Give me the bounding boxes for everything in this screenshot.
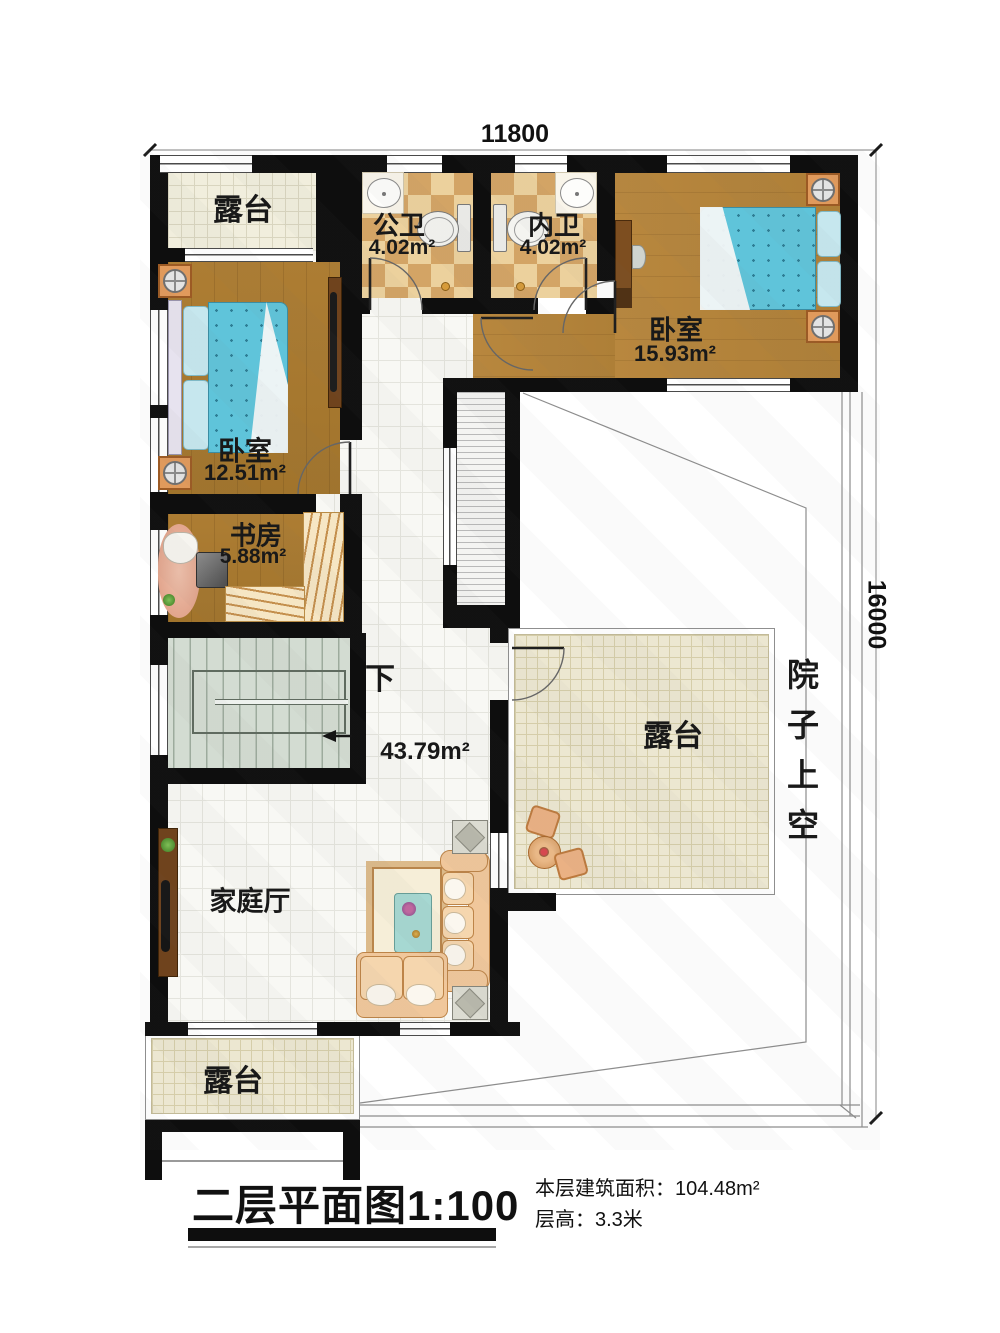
pergola-bar — [145, 1120, 360, 1132]
side-table — [452, 820, 488, 854]
room-label-terrace-top: 露台 — [213, 185, 273, 229]
door-knob — [516, 282, 525, 291]
table-flowers-icon — [402, 902, 416, 916]
window — [150, 310, 168, 405]
stairs-mid-rail — [215, 699, 348, 705]
pillow — [183, 306, 209, 376]
window — [667, 155, 790, 173]
bedroom-desk — [615, 220, 632, 290]
wall-family-bottom-3 — [450, 1022, 520, 1036]
wall-outer-right — [840, 155, 858, 392]
shaft-col-left-a — [443, 392, 457, 448]
window — [150, 665, 168, 755]
corridor-floor — [473, 314, 615, 378]
window-shaft — [443, 448, 457, 565]
plan-title: 二层平面图1:100 — [192, 1172, 519, 1233]
bed-headboard — [168, 300, 182, 455]
wall-family-bottom-2 — [317, 1022, 400, 1036]
window — [667, 378, 790, 392]
floor-height-row: 层高：3.3米 — [535, 1205, 760, 1236]
sink-basin — [367, 178, 401, 208]
pillow — [817, 261, 841, 307]
lamp-icon — [163, 269, 187, 293]
wall-family-bottom-1 — [145, 1022, 188, 1036]
lamp-icon — [811, 315, 835, 339]
floor-area-row: 本层建筑面积：104.48m² — [535, 1174, 760, 1205]
wall-pier — [316, 155, 362, 262]
side-table — [452, 986, 488, 1020]
wall-bath-right — [597, 155, 615, 281]
window — [490, 833, 508, 888]
wall-bath-bottom-4 — [586, 298, 615, 314]
room-area-bedroom-right: 15.93m² — [634, 341, 716, 367]
plant-icon — [163, 594, 175, 606]
patio-flower-icon — [539, 847, 549, 857]
room-area-study: 5.88m² — [220, 545, 287, 569]
wall-hall-courtyard-a — [490, 628, 508, 643]
room-label-family: 家庭厅 — [210, 880, 291, 919]
nightstand — [806, 310, 840, 343]
room-label-terrace-bottom: 露台 — [203, 1056, 263, 1100]
throw-pillow — [444, 878, 466, 900]
wall-stairs-bottom — [150, 768, 366, 784]
shaft-hatch — [457, 392, 505, 605]
floor-info: 本层建筑面积：104.48m² 层高：3.3米 — [535, 1174, 760, 1236]
wall-hall-courtyard-b — [490, 700, 508, 833]
floor-height-value: 3.3米 — [595, 1209, 643, 1231]
nightstand — [158, 456, 192, 490]
wardrobe-horizontal — [225, 586, 305, 622]
cabinet — [615, 288, 632, 308]
wall-bath-bottom-1 — [362, 298, 370, 314]
wall-stairs-right — [350, 633, 366, 772]
dimension-height: 16000 — [862, 565, 891, 665]
wall-bath-bottom-2 — [422, 298, 475, 314]
shaft-col-right — [505, 392, 520, 605]
tv-icon — [161, 880, 170, 952]
room-area-bath-public: 4.02m² — [369, 236, 436, 260]
throw-pillow — [406, 984, 436, 1006]
desk-chair — [632, 245, 646, 269]
floor-area-label: 本层建筑面积： — [535, 1178, 675, 1200]
window — [387, 155, 442, 173]
coffee-table — [394, 893, 432, 953]
floor-height-label: 层高： — [535, 1209, 595, 1231]
door-knob — [441, 282, 450, 291]
pillow — [183, 380, 209, 450]
desk-chair — [163, 532, 198, 564]
wall-bedroomL-right-a — [340, 262, 362, 440]
room-label-courtyard: 院子上空 — [778, 658, 824, 858]
wall-stub-terrace — [508, 893, 556, 911]
wall-bath-middle — [473, 155, 491, 314]
plant-icon — [161, 838, 175, 852]
stairs-down-label: 下 — [365, 654, 395, 698]
table-flowers-icon — [412, 930, 420, 938]
nightstand — [158, 264, 192, 298]
title-underline-bar — [188, 1228, 496, 1241]
nightstand — [806, 173, 840, 206]
room-area-bath-inner: 4.02m² — [520, 236, 587, 260]
pergola-rail — [162, 1160, 343, 1162]
window — [515, 155, 567, 173]
tv-icon — [330, 292, 337, 392]
wall-study-bottom — [150, 622, 362, 638]
sliding-door-terrace-top — [185, 248, 313, 262]
wall-bed-study-divider — [158, 494, 316, 514]
title-underline-thin — [188, 1246, 496, 1248]
room-area-hall: 43.79m² — [380, 738, 469, 766]
window — [400, 1022, 450, 1036]
window — [160, 155, 252, 173]
lamp-icon — [163, 461, 187, 485]
floor-plan: 露台 公卫 4.02m² 内卫 4.02m² 卧室 15.93m² 卧室 12.… — [0, 0, 1000, 1333]
wall-terrace-slider-end — [168, 248, 185, 262]
room-area-bedroom-left: 12.51m² — [204, 460, 286, 486]
wall-hall-courtyard-c — [490, 888, 508, 1022]
sink-basin — [560, 178, 594, 208]
throw-pillow — [366, 984, 396, 1006]
shaft-col-left-b — [443, 565, 457, 605]
pillow — [817, 211, 841, 257]
wall-corridor-bottom — [443, 378, 858, 392]
throw-pillow — [444, 912, 466, 934]
toilet-tank — [457, 204, 471, 252]
window — [188, 1022, 317, 1036]
lamp-icon — [811, 178, 835, 202]
wall-bath-bottom-3 — [489, 298, 538, 314]
room-label-terrace-mid: 露台 — [643, 711, 703, 755]
pergola-post-left — [145, 1132, 162, 1180]
wardrobe-vertical — [303, 512, 344, 622]
dimension-width: 11800 — [450, 120, 580, 149]
toilet-tank — [493, 204, 507, 252]
shaft-bottom — [443, 605, 520, 628]
floor-area-value: 104.48m² — [675, 1178, 760, 1200]
